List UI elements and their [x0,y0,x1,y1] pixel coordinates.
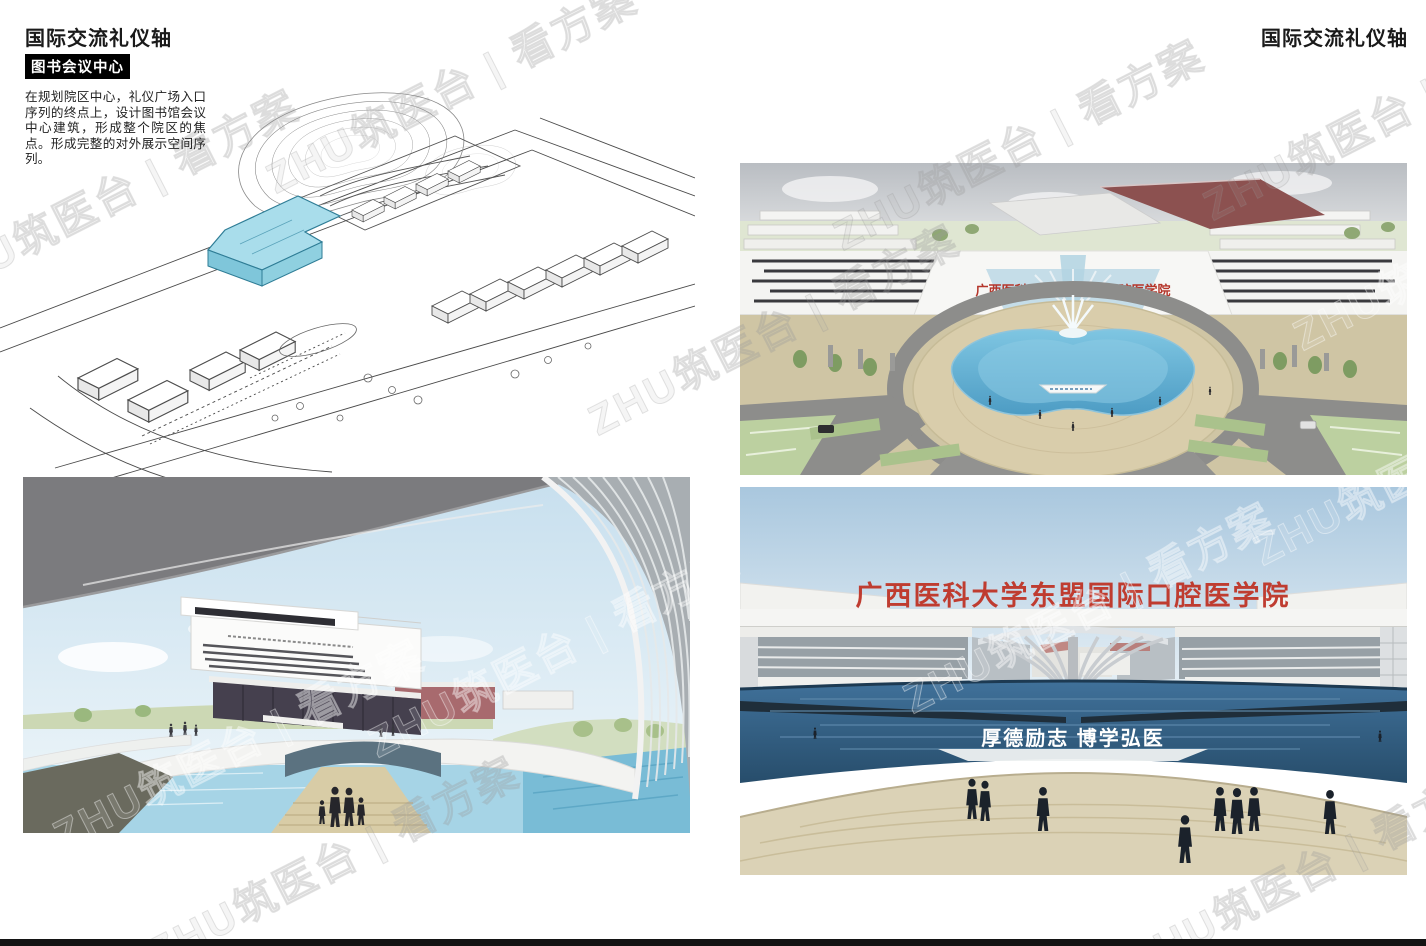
description-paragraph: 在规划院区中心，礼仪广场入口序列的终点上，设计图书馆会议中心建筑，形成整个院区的… [25,90,206,168]
site-plan-landscape [272,317,591,421]
page-title-right: 国际交流礼仪轴 [1261,22,1408,51]
gate-water: 厚德励志 博学弘医 [740,681,1407,783]
gate-banner-text: 广西医科大学东盟国际口腔医学院 [856,580,1291,611]
car [1300,421,1316,429]
site-plan-contours [239,93,516,218]
gate-view-rendering: 广西医科大学东盟国际口腔医学院 [740,487,1407,875]
site-plan-roads [0,118,695,480]
gate-motto-text: 厚德励志 博学弘医 [981,726,1165,750]
canopy-view-rendering [23,477,690,833]
site-plan-buildings [78,161,668,423]
page-title-left: 国际交流礼仪轴 [25,22,172,51]
car [818,425,834,433]
presentation-page: 国际交流礼仪轴 国际交流礼仪轴 图书会议中心 在规划院区中心，礼仪广场入口序列的… [0,0,1426,946]
motto-sign-platform [938,749,1208,761]
highlighted-library-building [208,196,340,286]
aerial-plaza-rendering: 广西医科大学东盟国际口腔医学院 [740,163,1407,475]
section-label: 图书会议中心 [25,54,130,79]
bottom-bar [0,939,1426,946]
